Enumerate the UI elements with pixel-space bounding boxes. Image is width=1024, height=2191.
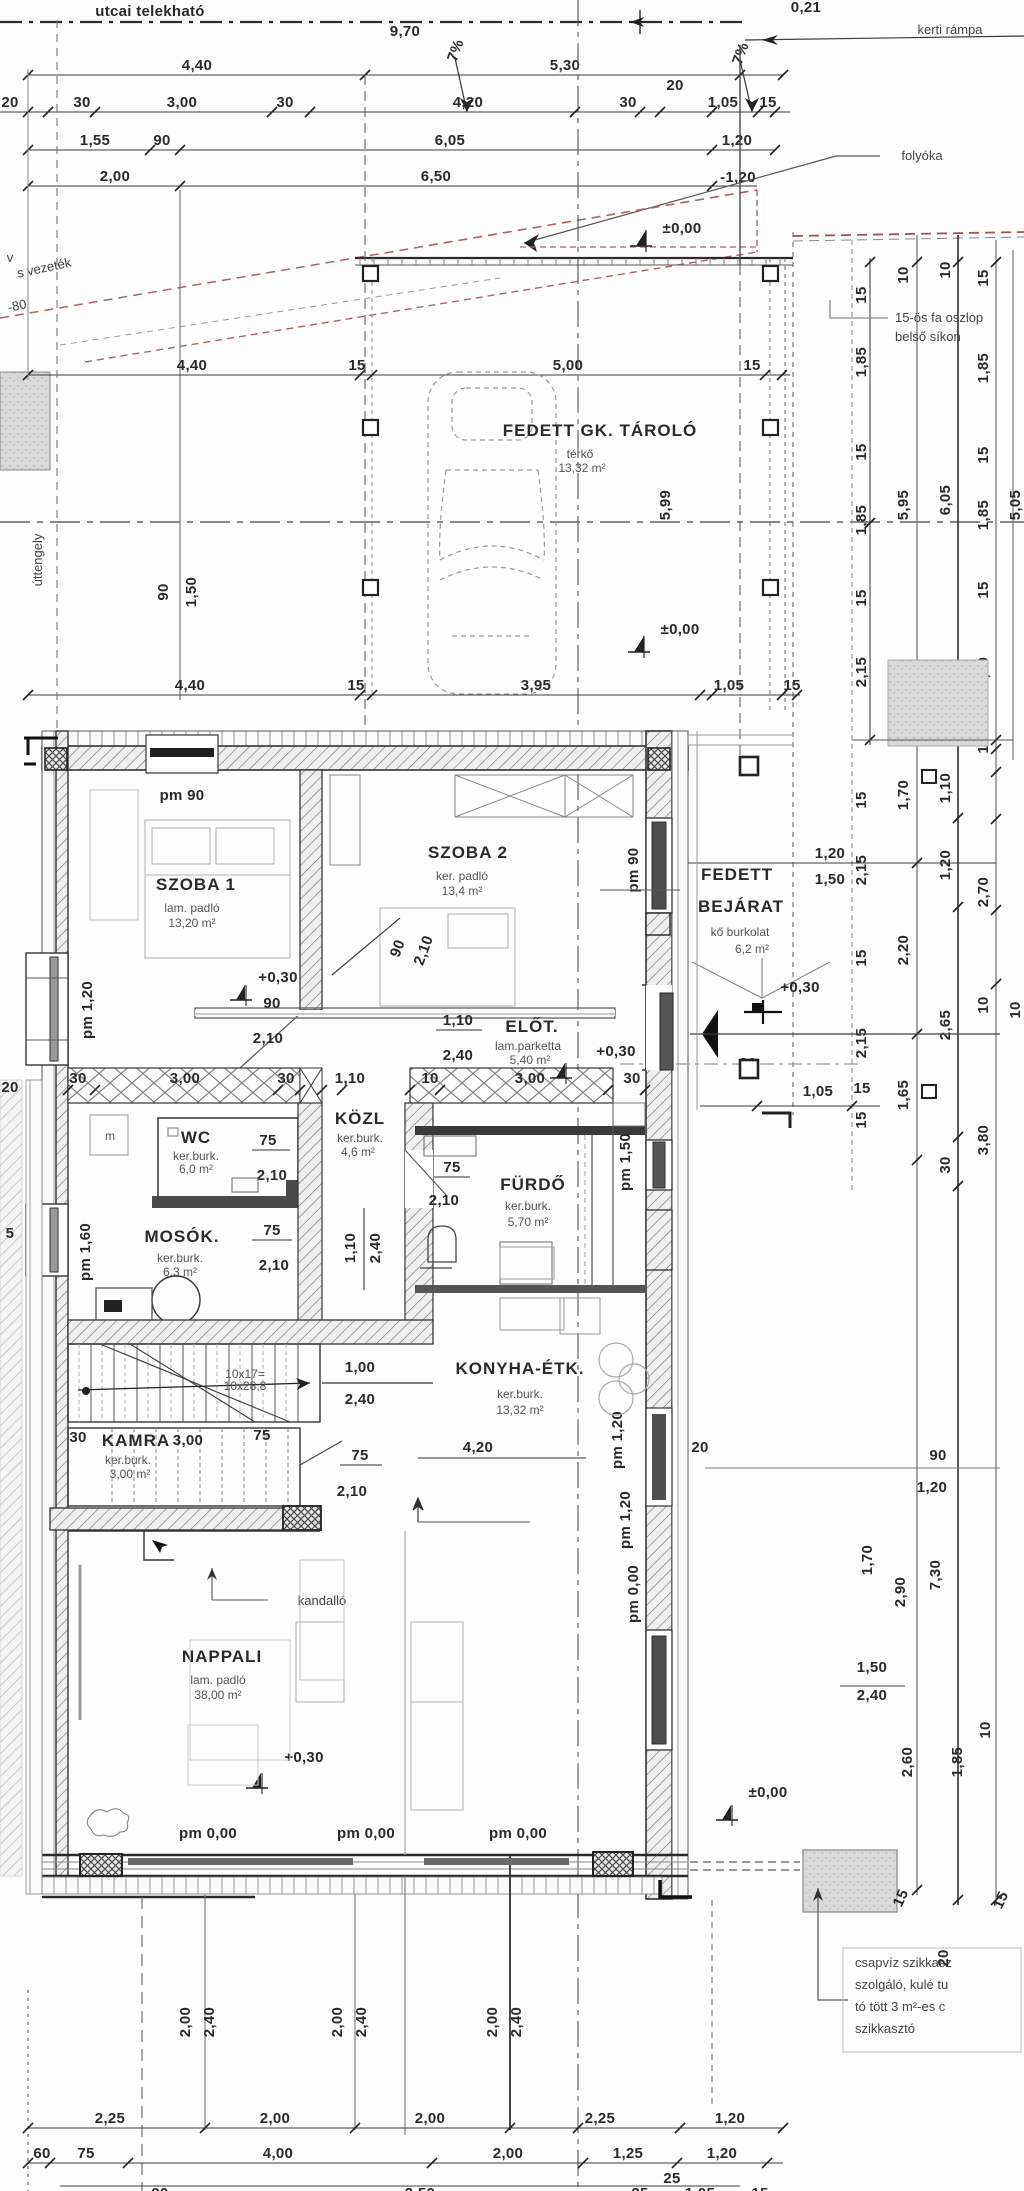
svg-text:térkő: térkő — [567, 447, 594, 461]
svg-text:2,10: 2,10 — [257, 1167, 287, 1184]
svg-text:1,20: 1,20 — [715, 2110, 745, 2127]
svg-text:1,10: 1,10 — [342, 1233, 359, 1263]
svg-text:pm 1,20: pm 1,20 — [79, 981, 96, 1039]
svg-text:13,4 m²: 13,4 m² — [442, 884, 483, 898]
svg-text:ker.burk.: ker.burk. — [505, 1199, 551, 1213]
svg-text:0,21: 0,21 — [791, 0, 821, 16]
svg-text:7,30: 7,30 — [927, 1560, 944, 1590]
svg-text:20: 20 — [666, 77, 683, 94]
svg-text:90: 90 — [153, 132, 170, 149]
svg-text:2,00: 2,00 — [415, 2110, 445, 2127]
svg-text:1,70: 1,70 — [895, 780, 912, 810]
svg-text:30: 30 — [277, 1070, 294, 1087]
svg-text:1,10: 1,10 — [443, 1012, 473, 1029]
svg-text:6,05: 6,05 — [435, 132, 465, 149]
svg-text:10: 10 — [937, 261, 954, 278]
svg-text:60: 60 — [33, 2145, 50, 2162]
svg-text:90: 90 — [263, 995, 280, 1012]
svg-text:13,32 m²: 13,32 m² — [496, 1403, 543, 1417]
svg-text:szikkasztó: szikkasztó — [855, 2021, 915, 2036]
svg-text:pm 0,00: pm 0,00 — [625, 1565, 642, 1623]
svg-text:6,0 m²: 6,0 m² — [179, 1162, 213, 1176]
svg-text:pm 0,00: pm 0,00 — [179, 1825, 237, 1842]
svg-text:FEDETT: FEDETT — [701, 865, 773, 884]
svg-text:1,85: 1,85 — [853, 347, 870, 377]
svg-text:2,00: 2,00 — [177, 2007, 194, 2037]
svg-text:2,25: 2,25 — [95, 2110, 125, 2127]
svg-text:pm 90: pm 90 — [160, 787, 205, 804]
svg-text:3,00: 3,00 — [515, 1070, 545, 1087]
svg-text:2,70: 2,70 — [975, 877, 992, 907]
svg-text:SZOBA 2: SZOBA 2 — [428, 843, 508, 862]
svg-text:MOSÓK.: MOSÓK. — [145, 1227, 220, 1246]
svg-text:6,05: 6,05 — [937, 485, 954, 515]
svg-text:10: 10 — [975, 996, 992, 1013]
svg-text:1,85: 1,85 — [853, 505, 870, 535]
svg-text:15: 15 — [751, 2185, 768, 2191]
svg-text:75: 75 — [263, 1222, 280, 1239]
svg-text:2,50: 2,50 — [405, 2185, 435, 2191]
svg-text:15: 15 — [853, 791, 870, 808]
svg-text:1,00: 1,00 — [345, 1359, 375, 1376]
svg-text:15: 15 — [759, 94, 776, 111]
svg-text:2,40: 2,40 — [508, 2007, 525, 2037]
svg-text:kandalló: kandalló — [298, 1593, 346, 1608]
svg-text:15: 15 — [975, 446, 992, 463]
svg-text:2,15: 2,15 — [853, 855, 870, 885]
svg-text:ker. padló: ker. padló — [436, 869, 488, 883]
svg-text:30: 30 — [69, 1070, 86, 1087]
svg-text:1,50: 1,50 — [815, 871, 845, 888]
svg-text:1,20: 1,20 — [815, 845, 845, 862]
svg-text:15: 15 — [853, 286, 870, 303]
svg-text:30: 30 — [73, 94, 90, 111]
svg-text:lam. padló: lam. padló — [190, 1673, 246, 1687]
svg-text:3,00: 3,00 — [173, 1432, 203, 1449]
svg-text:lam.parketta: lam.parketta — [495, 1039, 561, 1053]
svg-text:10: 10 — [1007, 1001, 1024, 1018]
svg-text:v: v — [7, 250, 14, 265]
svg-text:KAMRA: KAMRA — [102, 1431, 170, 1450]
svg-text:1,20: 1,20 — [937, 850, 954, 880]
svg-text:5,99: 5,99 — [657, 490, 674, 520]
svg-text:1,05: 1,05 — [685, 2185, 715, 2191]
svg-text:15: 15 — [783, 677, 800, 694]
svg-text:3,00: 3,00 — [167, 94, 197, 111]
svg-text:15: 15 — [853, 1080, 870, 1097]
svg-text:1,25: 1,25 — [613, 2145, 643, 2162]
svg-text:1,10: 1,10 — [335, 1070, 365, 1087]
svg-text:kő burkolat: kő burkolat — [711, 925, 770, 939]
svg-text:pm 1,60: pm 1,60 — [77, 1223, 94, 1281]
svg-text:1,85: 1,85 — [975, 500, 992, 530]
svg-text:20: 20 — [935, 1949, 952, 1966]
svg-text:2,25: 2,25 — [585, 2110, 615, 2127]
svg-text:±0,00: ±0,00 — [661, 621, 700, 638]
svg-text:10: 10 — [895, 266, 912, 283]
svg-text:90: 90 — [151, 2185, 168, 2191]
svg-text:20: 20 — [691, 1439, 708, 1456]
svg-text:5,95: 5,95 — [895, 490, 912, 520]
svg-text:belső síkon: belső síkon — [895, 329, 961, 344]
svg-text:pm 0,00: pm 0,00 — [337, 1825, 395, 1842]
svg-text:15: 15 — [853, 949, 870, 966]
svg-text:13,32 m²: 13,32 m² — [558, 461, 605, 475]
svg-text:pm 1,20: pm 1,20 — [609, 1411, 626, 1469]
svg-text:ker.burk.: ker.burk. — [173, 1149, 219, 1163]
svg-text:KÖZL: KÖZL — [335, 1109, 385, 1128]
svg-text:9,70: 9,70 — [390, 23, 420, 40]
svg-text:38,00 m²: 38,00 m² — [194, 1688, 241, 1702]
svg-text:ker.burk.: ker.burk. — [105, 1453, 151, 1467]
svg-text:3,00 m²: 3,00 m² — [110, 1467, 151, 1481]
svg-text:1,50: 1,50 — [183, 577, 200, 607]
svg-text:2,10: 2,10 — [429, 1192, 459, 1209]
svg-text:2,90: 2,90 — [892, 1577, 909, 1607]
svg-text:1,65: 1,65 — [895, 1080, 912, 1110]
svg-text:tó tött 3 m²-es c: tó tött 3 m²-es c — [855, 1999, 946, 2014]
svg-text:4,40: 4,40 — [177, 357, 207, 374]
svg-text:szolgáló, kulé tu: szolgáló, kulé tu — [855, 1977, 948, 1992]
svg-text:±0,00: ±0,00 — [663, 220, 702, 237]
svg-text:2,15: 2,15 — [853, 657, 870, 687]
svg-text:2,40: 2,40 — [345, 1391, 375, 1408]
svg-text:15-ös fa oszlop: 15-ös fa oszlop — [895, 310, 983, 325]
svg-text:1,50: 1,50 — [857, 1659, 887, 1676]
svg-text:30: 30 — [619, 94, 636, 111]
svg-text:1,10: 1,10 — [937, 773, 954, 803]
svg-text:90: 90 — [155, 583, 172, 600]
svg-text:5: 5 — [6, 1225, 15, 1242]
svg-text:6,2 m²: 6,2 m² — [735, 942, 769, 956]
svg-text:m: m — [105, 1129, 115, 1143]
svg-text:15: 15 — [853, 589, 870, 606]
svg-text:20: 20 — [1, 1079, 18, 1096]
svg-text:15: 15 — [853, 443, 870, 460]
svg-text:KONYHA-ÉTK.: KONYHA-ÉTK. — [455, 1359, 584, 1378]
svg-text:2,10: 2,10 — [253, 1030, 283, 1047]
svg-text:4,40: 4,40 — [182, 57, 212, 74]
svg-text:2,65: 2,65 — [937, 1010, 954, 1040]
svg-text:4,6 m²: 4,6 m² — [341, 1145, 375, 1159]
svg-text:3,80: 3,80 — [975, 1125, 992, 1155]
svg-text:NAPPALI: NAPPALI — [182, 1647, 262, 1666]
svg-text:1,85: 1,85 — [949, 1747, 966, 1777]
svg-text:75: 75 — [443, 1159, 460, 1176]
svg-text:1,05: 1,05 — [708, 94, 738, 111]
svg-text:75: 75 — [351, 1447, 368, 1464]
svg-text:15: 15 — [853, 1111, 870, 1128]
svg-text:4,40: 4,40 — [175, 677, 205, 694]
svg-text:13,20 m²: 13,20 m² — [168, 916, 215, 930]
svg-text:15: 15 — [975, 269, 992, 286]
svg-text:úttengely: úttengely — [30, 533, 45, 586]
svg-text:2,00: 2,00 — [493, 2145, 523, 2162]
svg-text:ker.burk.: ker.burk. — [337, 1131, 383, 1145]
svg-text:30: 30 — [276, 94, 293, 111]
svg-text:1,05: 1,05 — [714, 677, 744, 694]
svg-text:75: 75 — [253, 1427, 270, 1444]
svg-text:kerti rámpa: kerti rámpa — [917, 22, 983, 37]
svg-text:10: 10 — [421, 1070, 438, 1087]
svg-text:WC: WC — [181, 1128, 211, 1147]
svg-text:6,50: 6,50 — [421, 168, 451, 185]
svg-text:4,20: 4,20 — [453, 94, 483, 111]
svg-text:30: 30 — [937, 1156, 954, 1173]
svg-text:3,00: 3,00 — [170, 1070, 200, 1087]
svg-text:2,40: 2,40 — [367, 1233, 384, 1263]
svg-text:pm 90: pm 90 — [625, 848, 642, 893]
svg-text:2,10: 2,10 — [259, 1257, 289, 1274]
svg-text:4,20: 4,20 — [463, 1439, 493, 1456]
svg-text:5,70 m²: 5,70 m² — [508, 1215, 549, 1229]
svg-text:2,40: 2,40 — [443, 1047, 473, 1064]
svg-text:75: 75 — [77, 2145, 94, 2162]
svg-text:5,05: 5,05 — [1007, 490, 1024, 520]
svg-text:25: 25 — [631, 2185, 648, 2191]
svg-text:1,05: 1,05 — [803, 1083, 833, 1100]
svg-text:2,40: 2,40 — [353, 2007, 370, 2037]
svg-text:+0,30: +0,30 — [780, 979, 819, 996]
svg-text:75: 75 — [259, 1132, 276, 1149]
svg-text:2,15: 2,15 — [853, 1028, 870, 1058]
svg-text:10: 10 — [977, 1721, 994, 1738]
svg-text:1,20: 1,20 — [707, 2145, 737, 2162]
svg-text:2,40: 2,40 — [201, 2007, 218, 2037]
svg-text:30: 30 — [623, 1070, 640, 1087]
svg-text:SZOBA 1: SZOBA 1 — [156, 875, 236, 894]
svg-text:pm 0,00: pm 0,00 — [489, 1825, 547, 1842]
svg-text:2,60: 2,60 — [899, 1747, 916, 1777]
svg-text:2,40: 2,40 — [857, 1687, 887, 1704]
svg-text:1,85: 1,85 — [975, 353, 992, 383]
svg-text:ELŐT.: ELŐT. — [505, 1017, 558, 1036]
svg-text:20: 20 — [1, 94, 18, 111]
svg-text:10x28,8: 10x28,8 — [224, 1379, 267, 1393]
svg-text:90: 90 — [929, 1447, 946, 1464]
svg-text:15: 15 — [975, 581, 992, 598]
svg-text:1,20: 1,20 — [722, 132, 752, 149]
svg-text:2,00: 2,00 — [100, 168, 130, 185]
svg-text:2,00: 2,00 — [260, 2110, 290, 2127]
svg-text:+0,30: +0,30 — [258, 969, 297, 986]
svg-text:25: 25 — [663, 2170, 680, 2187]
svg-text:ker.burk.: ker.burk. — [157, 1251, 203, 1265]
svg-text:5,00: 5,00 — [553, 357, 583, 374]
svg-text:4,00: 4,00 — [263, 2145, 293, 2162]
svg-text:2,00: 2,00 — [329, 2007, 346, 2037]
svg-text:lam. padló: lam. padló — [164, 901, 220, 915]
svg-text:15: 15 — [743, 357, 760, 374]
svg-text:2,20: 2,20 — [895, 935, 912, 965]
svg-text:1,20: 1,20 — [917, 1479, 947, 1496]
svg-text:15: 15 — [347, 677, 364, 694]
svg-text:1,55: 1,55 — [80, 132, 110, 149]
svg-text:15: 15 — [348, 357, 365, 374]
svg-text:utcai telekható: utcai telekható — [95, 3, 205, 20]
svg-text:2,10: 2,10 — [337, 1483, 367, 1500]
svg-text:FEDETT GK. TÁROLÓ: FEDETT GK. TÁROLÓ — [503, 421, 698, 440]
svg-text:FÜRDŐ: FÜRDŐ — [500, 1175, 565, 1194]
svg-text:1,70: 1,70 — [859, 1545, 876, 1575]
svg-text:5,40 m²: 5,40 m² — [510, 1053, 551, 1067]
svg-text:5,30: 5,30 — [550, 57, 580, 74]
svg-text:2,00: 2,00 — [484, 2007, 501, 2037]
svg-text:folyóka: folyóka — [901, 148, 943, 163]
svg-text:±0,00: ±0,00 — [749, 1784, 788, 1801]
svg-text:pm 1,50: pm 1,50 — [617, 1133, 634, 1191]
svg-text:ker.burk.: ker.burk. — [497, 1387, 543, 1401]
svg-text:+0,30: +0,30 — [596, 1043, 635, 1060]
svg-text:3,95: 3,95 — [521, 677, 551, 694]
svg-text:30: 30 — [69, 1429, 86, 1446]
svg-text:pm 1,20: pm 1,20 — [617, 1491, 634, 1549]
svg-text:BEJÁRAT: BEJÁRAT — [698, 897, 784, 916]
